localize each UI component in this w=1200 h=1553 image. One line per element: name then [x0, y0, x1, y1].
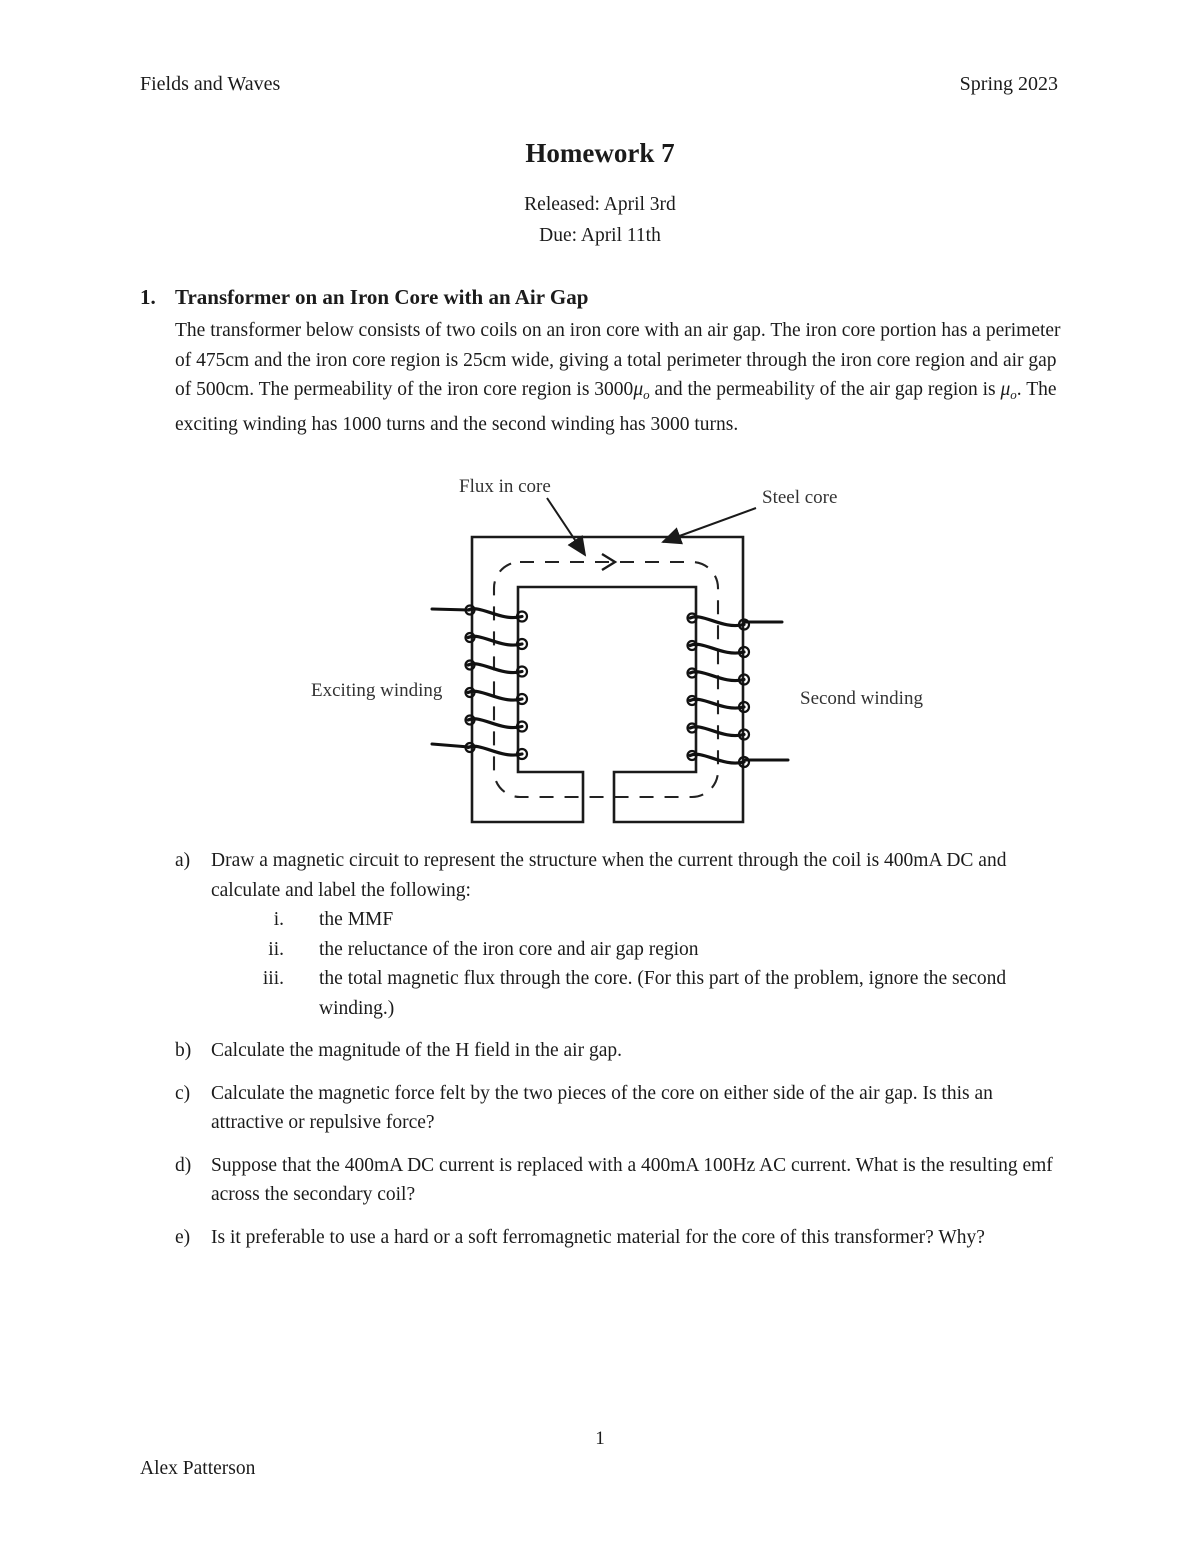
question-c-label: c)	[175, 1079, 211, 1138]
exciting-winding-coil	[432, 606, 527, 760]
mu-symbol: μ	[1001, 379, 1011, 400]
sub-iii-text: the total magnetic flux through the core…	[319, 964, 1067, 1023]
transformer-diagram: Flux in core Steel core Exciting winding…	[300, 468, 960, 848]
term-label: Spring 2023	[960, 73, 1058, 96]
due-date: Due: April 11th	[0, 225, 1200, 247]
question-a-sub-ii: ii. the reluctance of the iron core and …	[211, 935, 1067, 965]
intro-text-b: and the permeability of the air gap regi…	[650, 379, 1001, 400]
question-c: c) Calculate the magnetic force felt by …	[175, 1079, 1067, 1138]
question-e-text: Is it preferable to use a hard or a soft…	[211, 1223, 1067, 1253]
mu-symbol: μ	[633, 379, 643, 400]
intro-paragraph: The transformer below consists of two co…	[175, 316, 1061, 439]
question-a-sub-iii: iii. the total magnetic flux through the…	[211, 964, 1067, 1023]
homework-document-page: Fields and Waves Spring 2023 Homework 7 …	[0, 0, 1200, 1553]
question-a-sub-i: i. the MMF	[211, 905, 1067, 935]
steel-core-outline	[472, 537, 743, 822]
question-b-text: Calculate the magnitude of the H field i…	[211, 1036, 1067, 1066]
question-e-label: e)	[175, 1223, 211, 1253]
flux-path-dashed-loop	[494, 562, 718, 797]
sub-ii-label: ii.	[211, 935, 284, 965]
question-e: e) Is it preferable to use a hard or a s…	[175, 1223, 1067, 1253]
question-d-label: d)	[175, 1151, 211, 1210]
exciting-winding-label: Exciting winding	[311, 680, 443, 701]
sub-ii-text: the reluctance of the iron core and air …	[319, 935, 1067, 965]
question-a-text: Draw a magnetic circuit to represent the…	[211, 846, 1067, 905]
question-d-text: Suppose that the 400mA DC current is rep…	[211, 1151, 1067, 1210]
question-a: a) Draw a magnetic circuit to represent …	[175, 846, 1067, 1023]
second-winding-coil	[688, 614, 789, 768]
question-b-label: b)	[175, 1036, 211, 1066]
course-name: Fields and Waves	[140, 73, 280, 96]
author-name: Alex Patterson	[140, 1458, 255, 1480]
steel-core-label: Steel core	[762, 487, 837, 508]
section-title: Transformer on an Iron Core with an Air …	[175, 285, 588, 310]
flux-label-arrow	[547, 498, 585, 555]
section-heading: 1. Transformer on an Iron Core with an A…	[140, 285, 1060, 310]
second-winding-label: Second winding	[800, 688, 923, 709]
section-number: 1.	[140, 285, 175, 310]
question-b: b) Calculate the magnitude of the H fiel…	[175, 1036, 1067, 1066]
document-title: Homework 7	[0, 138, 1200, 169]
sub-i-text: the MMF	[319, 905, 1067, 935]
sub-iii-label: iii.	[211, 964, 284, 1023]
question-c-text: Calculate the magnetic force felt by the…	[211, 1079, 1067, 1138]
flux-in-core-label: Flux in core	[459, 476, 551, 497]
page-number: 1	[0, 1428, 1200, 1450]
question-d: d) Suppose that the 400mA DC current is …	[175, 1151, 1067, 1210]
question-list: a) Draw a magnetic circuit to represent …	[175, 846, 1067, 1265]
sub-i-label: i.	[211, 905, 284, 935]
released-date: Released: April 3rd	[0, 194, 1200, 216]
question-a-label: a)	[175, 846, 211, 1023]
